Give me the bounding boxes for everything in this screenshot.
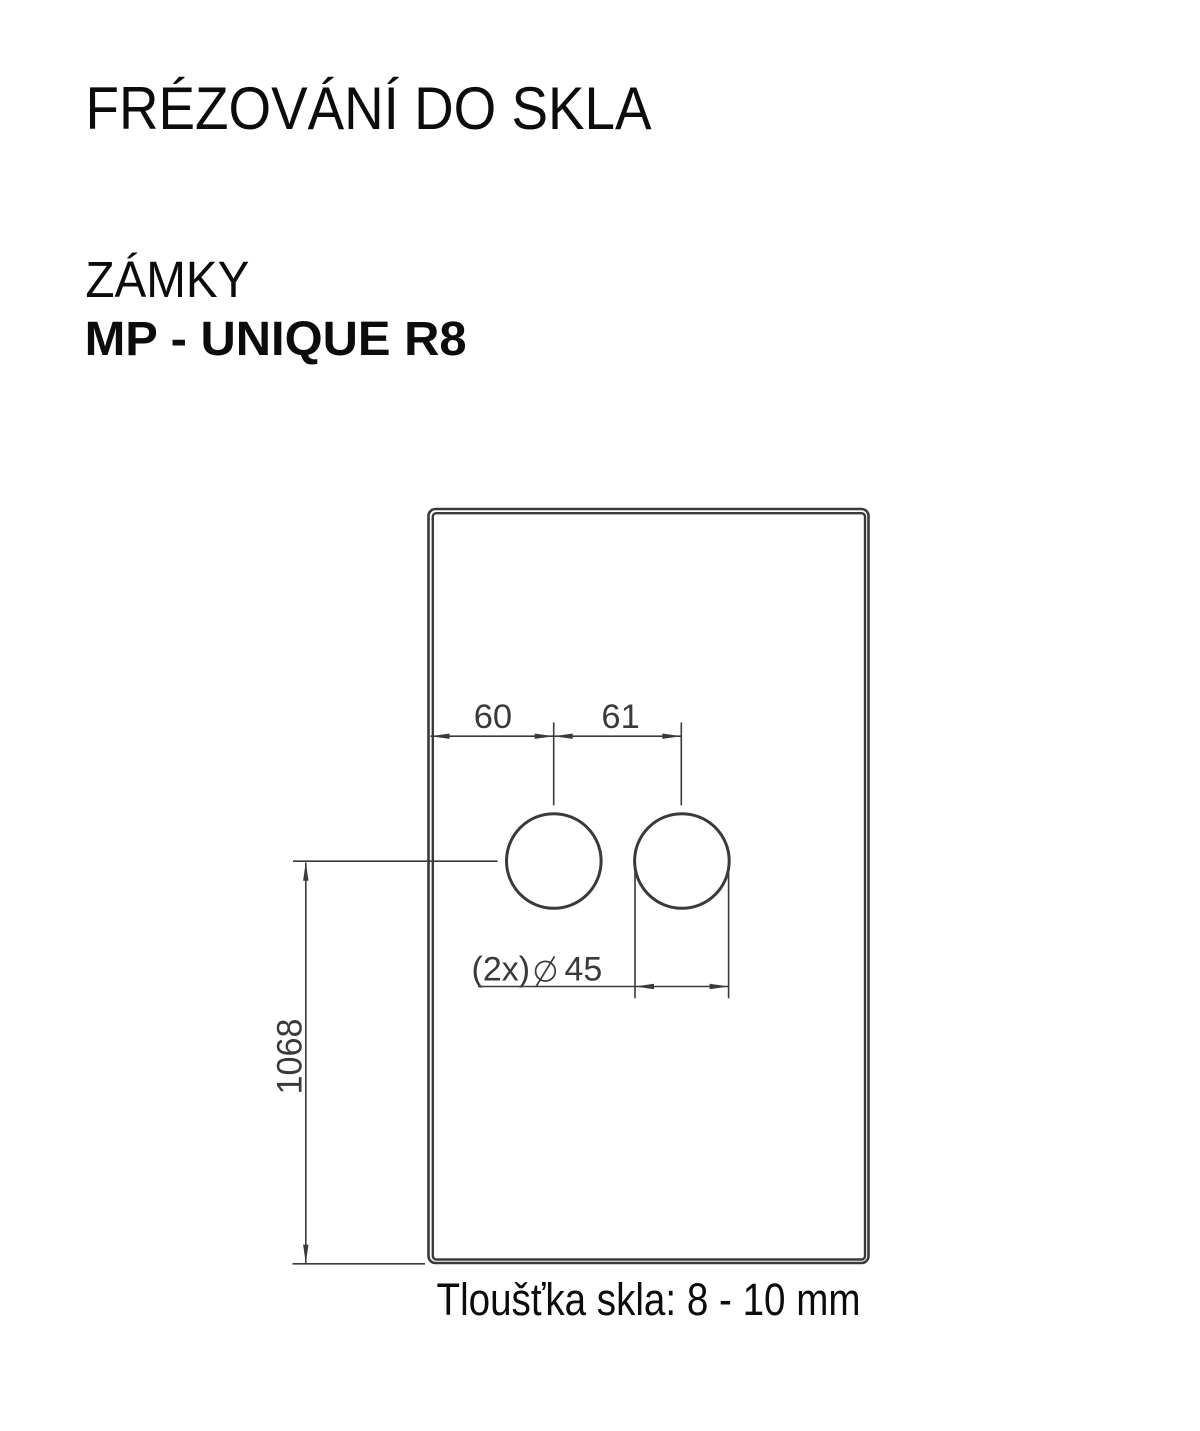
- svg-text:(2x): (2x): [472, 950, 531, 988]
- svg-text:45: 45: [565, 950, 603, 988]
- svg-text:61: 61: [601, 698, 639, 736]
- svg-text:1068: 1068: [270, 1019, 310, 1095]
- svg-text:60: 60: [474, 698, 512, 736]
- svg-text:MP - UNIQUE R8: MP - UNIQUE R8: [85, 312, 467, 366]
- svg-text:ZÁMKY: ZÁMKY: [85, 251, 249, 308]
- svg-text:Tloušťka skla: 8 - 10 mm: Tloušťka skla: 8 - 10 mm: [437, 1274, 861, 1325]
- svg-text:FRÉZOVÁNÍ DO SKLA: FRÉZOVÁNÍ DO SKLA: [86, 75, 652, 142]
